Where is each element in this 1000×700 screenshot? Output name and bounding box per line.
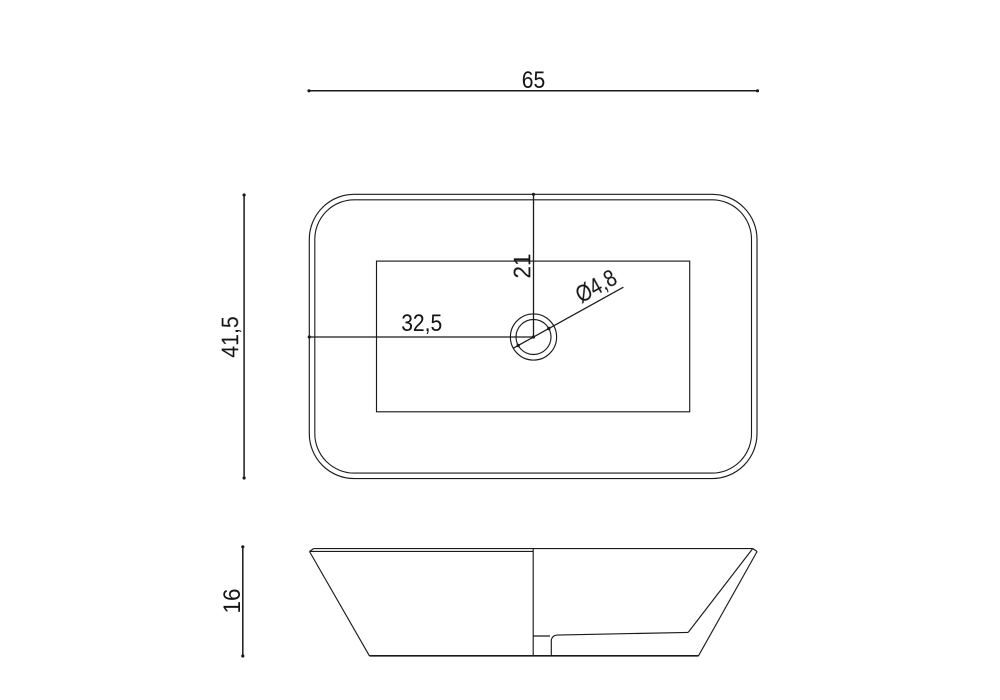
svg-text:65: 65 <box>522 67 546 94</box>
svg-text:41,5: 41,5 <box>217 316 244 358</box>
svg-text:21: 21 <box>509 254 536 279</box>
svg-text:16: 16 <box>219 589 246 614</box>
svg-text:32,5: 32,5 <box>401 310 442 337</box>
